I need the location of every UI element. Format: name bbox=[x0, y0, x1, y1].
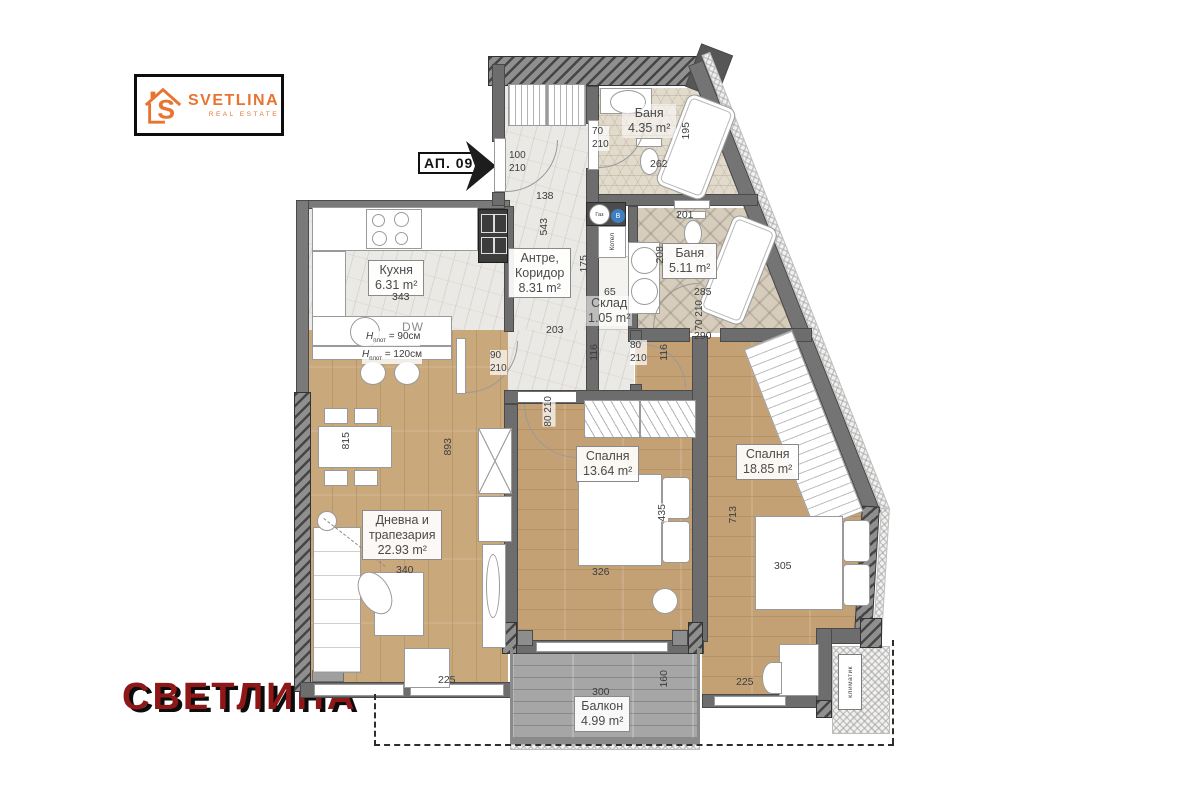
entrance-door-leaf bbox=[494, 138, 506, 192]
dim-balcony-d: 160 bbox=[658, 670, 670, 688]
wall-left-lower bbox=[294, 392, 311, 692]
bath-main-sink-2 bbox=[631, 278, 658, 305]
dim-bed2-len: 713 bbox=[727, 506, 739, 524]
label-balcony: Балкон 4.99 m² bbox=[574, 696, 630, 732]
logo-text: SVETLINA bbox=[188, 92, 279, 110]
burner-1 bbox=[372, 214, 385, 227]
label-bedroom2: Спалня 18.85 m² bbox=[736, 444, 799, 480]
dim-bath-main-top: 201 bbox=[676, 209, 694, 221]
door-entrance-size: 100210 bbox=[509, 150, 526, 175]
dim-below-bath: 290 bbox=[694, 330, 712, 342]
gas-meter: Газ bbox=[589, 204, 610, 225]
burner-2 bbox=[394, 212, 409, 227]
burner-4 bbox=[395, 232, 408, 245]
floor-corridor bbox=[504, 330, 634, 392]
burner-3 bbox=[372, 231, 387, 246]
svg-text:S: S bbox=[157, 94, 175, 124]
bed2-pillow-1 bbox=[843, 520, 870, 562]
window-bed2 bbox=[714, 696, 786, 706]
chair-3 bbox=[324, 470, 348, 486]
dim-bath-top-d: 195 bbox=[680, 122, 692, 140]
dashed-outline-right bbox=[892, 640, 894, 744]
bed1-wardrobe-2 bbox=[640, 400, 696, 438]
wall-hall-left-b bbox=[492, 192, 505, 206]
dim-hall-mid: 175 bbox=[578, 255, 590, 273]
bed1-pillow-2 bbox=[662, 521, 690, 563]
bed2-desk bbox=[779, 644, 819, 696]
kitchen-cabinet-left bbox=[312, 251, 346, 317]
label-bedroom1: Спалня 13.64 m² bbox=[576, 446, 639, 482]
wall-corner-hatch bbox=[860, 618, 882, 648]
label-storage: Склад 1.05 m² bbox=[586, 296, 632, 326]
dining-table bbox=[318, 426, 392, 468]
dim-bed1-d: 435 bbox=[656, 504, 668, 522]
tv-screen bbox=[486, 554, 500, 618]
bed1-mattress bbox=[578, 474, 662, 566]
bar-stool-2 bbox=[394, 361, 420, 385]
bed2-chair bbox=[762, 662, 782, 694]
dim-bath-top-w: 262 bbox=[650, 158, 668, 170]
house-logo-icon: S bbox=[142, 84, 184, 126]
dim-kitchen-width: 343 bbox=[392, 291, 410, 303]
dim-balcony-w: 300 bbox=[592, 686, 610, 698]
wall-corner-hatch2 bbox=[816, 700, 832, 718]
tv-wardrobe bbox=[478, 428, 512, 494]
label-bath-top: Баня 4.35 m² bbox=[622, 104, 676, 138]
dim-bed2-w: 305 bbox=[774, 560, 792, 572]
chair-4 bbox=[354, 470, 378, 486]
pier-stub-left bbox=[517, 630, 533, 646]
counter-height-120: Hплот = 120см bbox=[362, 349, 422, 364]
dim-living-len: 893 bbox=[442, 438, 454, 456]
label-living: Дневна и трапезария 22.93 m² bbox=[362, 510, 442, 560]
ac-label: климатик bbox=[847, 666, 854, 698]
wall-hall-right-a bbox=[586, 86, 599, 124]
wall-left-upper bbox=[296, 200, 309, 394]
counter-height-90: Hплот = 90см bbox=[366, 331, 420, 346]
bed2-pillow-2 bbox=[843, 564, 870, 606]
door-living-size: 90210 bbox=[490, 350, 507, 375]
dim-bath-main-w: 285 bbox=[694, 286, 712, 298]
fridge-door-4 bbox=[494, 237, 507, 254]
fridge-door-3 bbox=[481, 237, 494, 254]
dashed-outline-bottom bbox=[374, 744, 894, 746]
pier-balcony-right bbox=[688, 622, 703, 654]
window-living-1 bbox=[314, 684, 404, 696]
chair-1 bbox=[324, 408, 348, 424]
window-balcony-door bbox=[536, 642, 668, 652]
bed2-mattress bbox=[755, 516, 843, 610]
dim-niche: 65 bbox=[604, 286, 616, 298]
fridge-door-1 bbox=[481, 214, 494, 233]
door-bath-top-size: 70210 bbox=[592, 126, 609, 151]
door-bedroom2-size: 80210 bbox=[630, 340, 647, 365]
unit-label: АП. 09 bbox=[418, 152, 479, 174]
dim-bed2-low: 225 bbox=[736, 676, 754, 688]
door-bath-main-size: 70 210 bbox=[694, 300, 707, 331]
dim-bed1-w: 326 bbox=[592, 566, 610, 578]
wall-top bbox=[488, 56, 708, 86]
dim-living-low: 225 bbox=[438, 674, 456, 686]
dim-hall-len: 543 bbox=[538, 218, 550, 236]
boiler-label: Котел bbox=[609, 233, 616, 250]
agency-logo: S SVETLINA REAL ESTATE bbox=[134, 74, 284, 136]
label-hallway: Антре, Коридор 8.31 m² bbox=[508, 248, 571, 298]
water-label: В bbox=[616, 213, 621, 220]
gas-label: Газ bbox=[595, 212, 603, 218]
sofa bbox=[313, 527, 361, 673]
living-door-leaf bbox=[456, 338, 466, 394]
boiler-closet: Котел bbox=[598, 226, 626, 258]
dim-hall-top: 138 bbox=[536, 190, 554, 202]
dashed-outline-left bbox=[374, 694, 376, 746]
hall-wardrobe-1 bbox=[508, 84, 547, 126]
door-bedroom1-size: 80 210 bbox=[543, 396, 556, 427]
dim-hall-low: 203 bbox=[546, 324, 564, 336]
label-bath-main: Баня 5.11 m² bbox=[662, 243, 717, 279]
chair-2 bbox=[354, 408, 378, 424]
hall-wardrobe-2 bbox=[547, 84, 586, 126]
bed1-nightstand bbox=[652, 588, 678, 614]
dim-bath-main-d: 208 bbox=[654, 246, 666, 264]
balcony-rail-left bbox=[510, 648, 513, 742]
balcony-rail-right bbox=[697, 648, 700, 742]
pier-stub-right bbox=[672, 630, 688, 646]
tv-shelf bbox=[478, 496, 512, 542]
ac-unit: климатик bbox=[838, 654, 862, 710]
bath-main-shelf bbox=[674, 200, 710, 209]
dim-pass2: 116 bbox=[658, 344, 670, 361]
water-meter: В bbox=[611, 209, 625, 223]
fridge-door-2 bbox=[494, 214, 507, 233]
logo-subtext: REAL ESTATE bbox=[188, 111, 279, 118]
dim-pass1: 116 bbox=[588, 344, 600, 361]
dim-living-w: 340 bbox=[396, 564, 414, 576]
bed1-wardrobe-1 bbox=[584, 400, 640, 438]
floorplan-canvas: S SVETLINA REAL ESTATE АП. 09 СВЕТЛИНА bbox=[0, 0, 1200, 800]
dim-dining: 815 bbox=[340, 432, 352, 450]
wall-bed1-bed2 bbox=[692, 336, 708, 642]
wall-hall-left-a bbox=[492, 64, 505, 142]
bar-stool-1 bbox=[360, 361, 386, 385]
